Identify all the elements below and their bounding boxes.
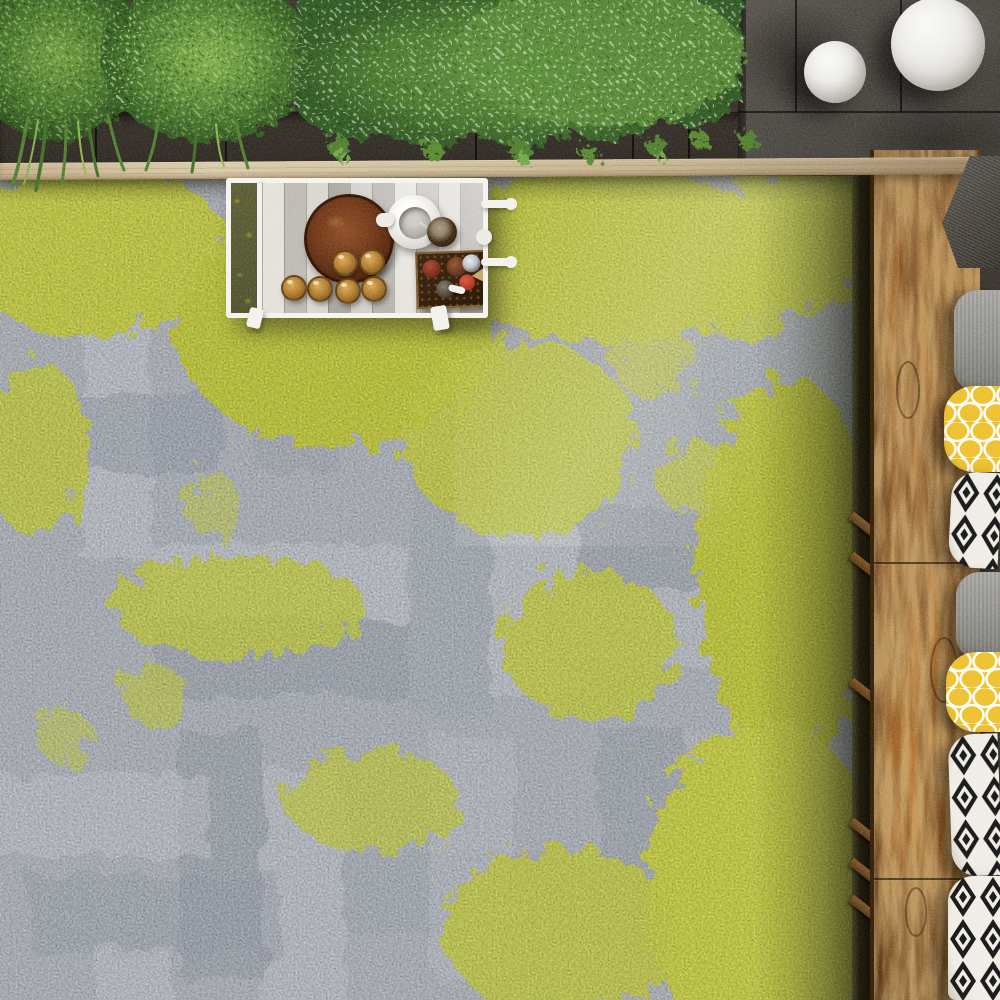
pillow-shading xyxy=(954,290,1000,392)
wooden-bench xyxy=(870,150,980,1000)
curb-seam xyxy=(475,114,477,166)
gray-pillow-upper xyxy=(954,290,1000,392)
yellow-ogee-pillow-upper xyxy=(944,386,1000,472)
curb-seam xyxy=(225,114,227,166)
lounge-scene xyxy=(0,0,1000,1000)
drink-glass xyxy=(281,275,307,301)
drink-glass xyxy=(359,249,385,275)
table-leg-right-top xyxy=(481,200,513,208)
pillow-shading xyxy=(956,572,1000,660)
diamond-pattern xyxy=(948,733,1000,877)
planter-wall xyxy=(738,0,746,168)
small-bowl xyxy=(427,217,457,247)
stone-seam xyxy=(738,111,1000,113)
diamond-pattern xyxy=(948,876,1000,1000)
decor-sphere-large xyxy=(891,0,985,91)
decor-sphere-small xyxy=(804,41,866,103)
ogee-pattern xyxy=(946,652,1000,732)
diamond-pillow-upper xyxy=(948,471,1000,569)
table-leg-right-bottom xyxy=(481,258,513,266)
tray-table xyxy=(226,178,488,318)
drink-glass xyxy=(332,250,358,276)
bottle-silver xyxy=(462,254,481,273)
table-side-gap xyxy=(231,183,257,313)
yellow-ogee-pillow-lower xyxy=(946,652,1000,732)
table-top-planks xyxy=(262,183,483,313)
gray-pillow-middle xyxy=(956,572,1000,660)
bottle-crate xyxy=(415,250,483,309)
curb-seam xyxy=(95,114,97,166)
diamond-pillow-large xyxy=(948,733,1000,877)
drink-glass xyxy=(307,276,333,302)
stone-seam xyxy=(795,0,797,112)
bottle-maroon xyxy=(422,259,441,278)
diamond-pattern xyxy=(948,471,1000,569)
diamond-pillow-bottom xyxy=(948,876,1000,1000)
ogee-pattern xyxy=(944,386,1000,472)
drink-glass xyxy=(335,278,361,304)
table-leg-joint xyxy=(476,229,492,245)
pitcher-handle xyxy=(376,213,394,227)
drink-glass xyxy=(361,276,387,302)
curb-seam xyxy=(340,114,342,166)
